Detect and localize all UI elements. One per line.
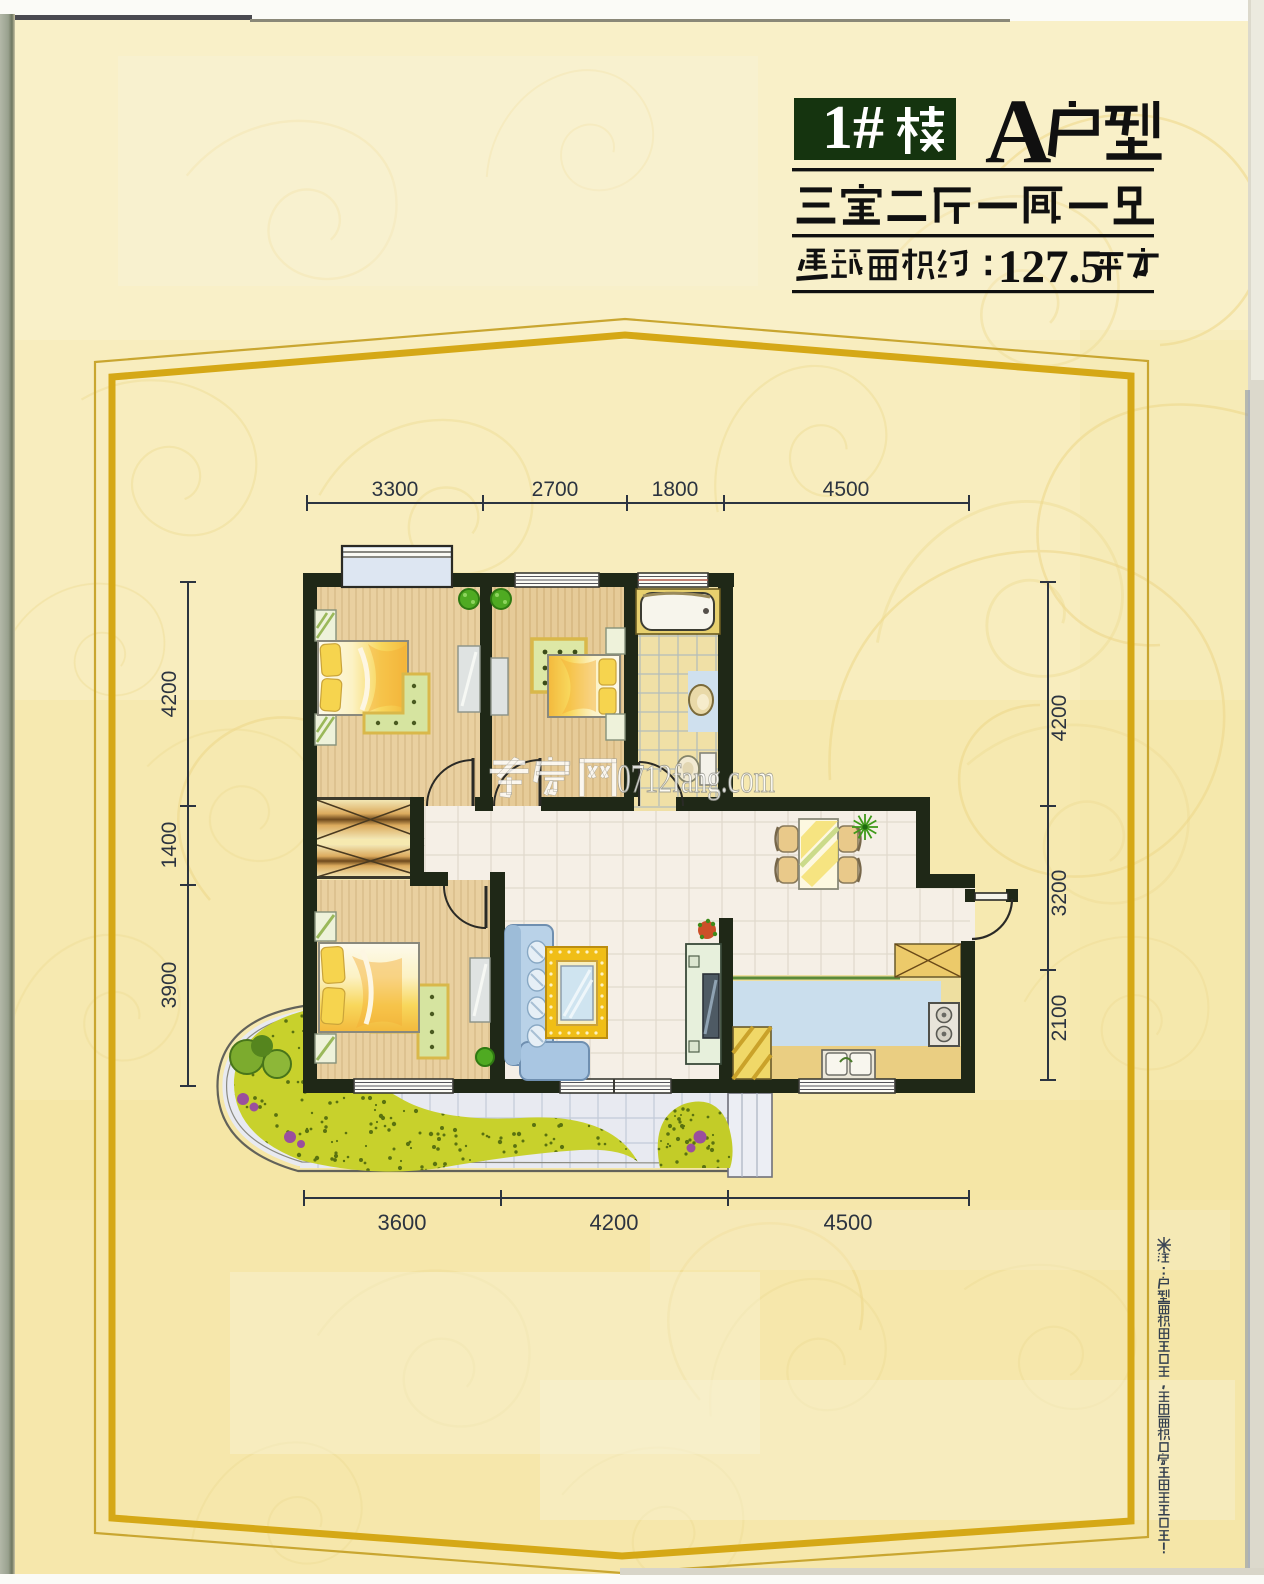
svg-text:2700: 2700 (532, 478, 579, 501)
svg-text:A: A (985, 80, 1051, 182)
svg-text:1#: 1# (822, 94, 884, 162)
svg-text:4200: 4200 (1048, 695, 1071, 742)
svg-text:4200: 4200 (590, 1210, 639, 1235)
svg-text:3600: 3600 (378, 1210, 427, 1235)
svg-text:127.5: 127.5 (998, 241, 1104, 293)
svg-text:4500: 4500 (823, 478, 870, 501)
svg-text:3900: 3900 (158, 962, 181, 1009)
svg-text:1400: 1400 (158, 822, 181, 869)
svg-text:4500: 4500 (824, 1210, 873, 1235)
svg-text:4200: 4200 (158, 671, 181, 718)
svg-text:0712fang.com: 0712fang.com (617, 756, 775, 801)
svg-text:3200: 3200 (1048, 870, 1071, 917)
svg-text:2100: 2100 (1048, 995, 1071, 1042)
svg-text:1800: 1800 (652, 478, 699, 501)
svg-text:3300: 3300 (372, 478, 419, 501)
